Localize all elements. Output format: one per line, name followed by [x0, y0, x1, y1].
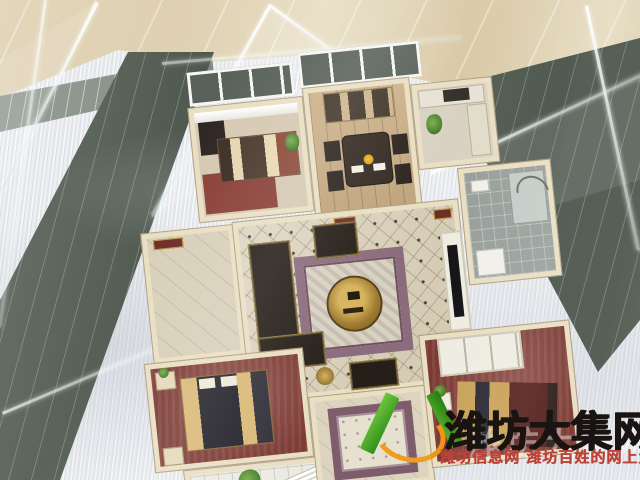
watermark-tagline: 潍坊信息网 潍坊百姓的网上大集	[440, 446, 640, 467]
dining-chair	[391, 133, 409, 155]
interior-door	[153, 237, 184, 250]
place-setting	[351, 165, 364, 173]
television	[447, 245, 464, 318]
room-kitchen	[411, 77, 499, 169]
dining-table	[341, 131, 394, 188]
sink	[470, 179, 489, 193]
potted-plant	[237, 468, 261, 480]
room-dining	[303, 78, 422, 220]
white-wardrobe	[437, 330, 525, 377]
table-decor	[347, 291, 360, 300]
room-bathroom	[458, 159, 562, 284]
armchair	[312, 221, 359, 259]
sofa	[248, 240, 300, 340]
room-bedroom-master	[145, 348, 313, 472]
photo-canvas: 潍坊大集网 潍坊大集网 潍坊信息网 潍坊百姓的网上大集	[0, 0, 640, 480]
dining-chair	[327, 170, 345, 192]
nightstand	[163, 446, 185, 466]
curtain	[194, 103, 298, 124]
dining-chair	[394, 163, 412, 185]
pillow	[199, 378, 216, 390]
gold-side-table	[315, 366, 335, 386]
interior-door	[433, 208, 452, 220]
table-decor	[343, 307, 363, 314]
dining-chair	[323, 140, 341, 162]
hallway	[141, 225, 246, 364]
bathtub	[476, 248, 507, 277]
pillow	[220, 375, 237, 387]
potted-plant	[425, 114, 443, 136]
room-bedroom-north	[188, 97, 313, 222]
bed	[179, 369, 274, 452]
sideboard-cabinet	[322, 87, 395, 124]
kitchen-counter-side	[466, 103, 491, 157]
place-setting	[373, 163, 386, 171]
